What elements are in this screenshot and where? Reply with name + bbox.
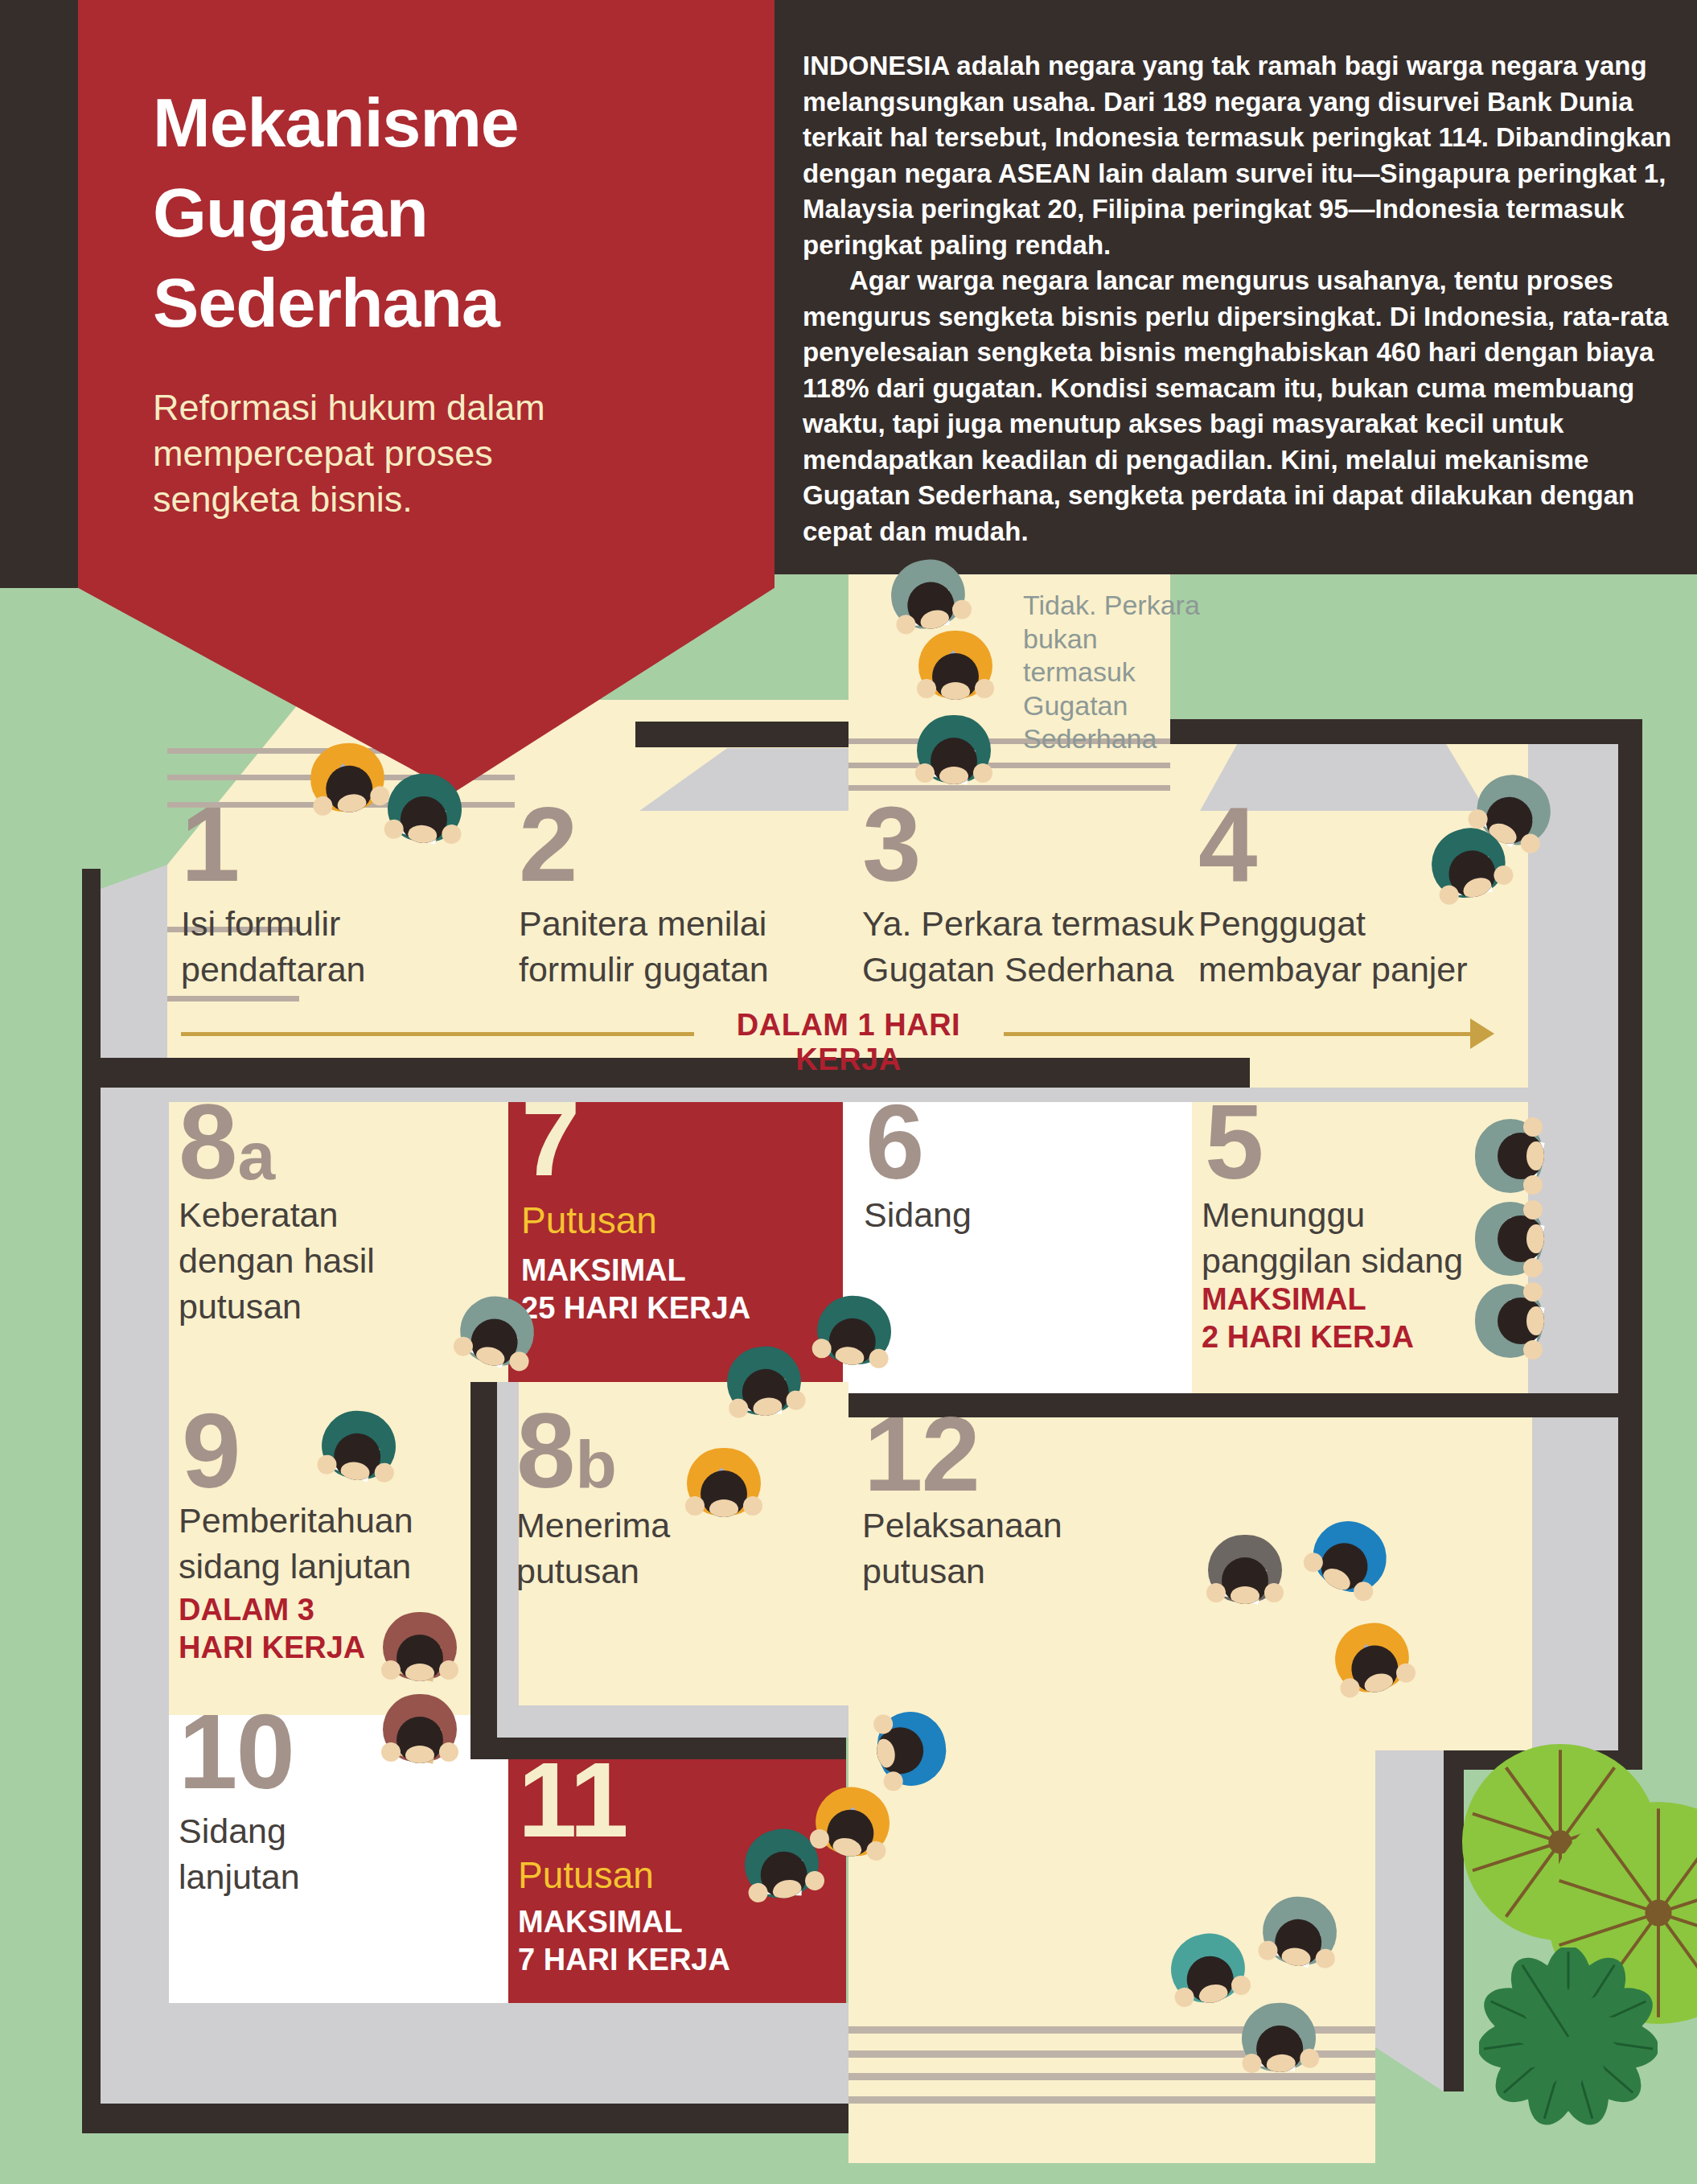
step-8a-number-main: 8 xyxy=(179,1104,236,1181)
step-8b-number: 8b xyxy=(516,1413,615,1490)
person-face-icon xyxy=(941,682,970,700)
person-head-icon xyxy=(931,738,977,784)
step-2-title-line: Panitera menilai xyxy=(519,901,769,947)
subtitle-line: sengketa bisnis. xyxy=(153,476,545,522)
step-9-note-line: DALAM 3 xyxy=(179,1591,365,1629)
sidewalk-top-band xyxy=(101,1088,1618,1102)
step-2-number: 2 xyxy=(519,806,576,883)
person-hand-icon xyxy=(973,763,992,783)
step-3-title: Ya. Perkara termasukGugatan Sederhana xyxy=(862,901,1194,993)
person-icon xyxy=(917,627,994,705)
person-icon xyxy=(865,1704,955,1793)
step-8a-title-line: dengan hasil xyxy=(179,1238,375,1284)
step-11-note-line: MAKSIMAL xyxy=(518,1903,730,1941)
sidewalk-left xyxy=(101,1088,169,2104)
step-9-title-line: Pemberitahuan xyxy=(179,1498,413,1544)
step-8a-number-sub: a xyxy=(237,1131,273,1181)
person-hand-icon xyxy=(685,1496,705,1516)
person-face-icon xyxy=(709,1499,738,1517)
step-6-title-line: Sidang xyxy=(864,1192,972,1238)
subtitle-line: mempercepat proses xyxy=(153,430,545,476)
person-hand-icon xyxy=(439,1660,458,1680)
person-hand-icon xyxy=(1523,1340,1543,1359)
step-7-label: Putusan xyxy=(521,1200,657,1240)
step-4-title-line: Penggugat xyxy=(1198,901,1468,947)
person-face-icon xyxy=(834,1345,866,1369)
step-7-note-line: MAKSIMAL xyxy=(521,1252,750,1289)
step-10-title-line: lanjutan xyxy=(179,1854,300,1900)
title-line: Sederhana xyxy=(153,257,519,348)
step-8b-number-sub: b xyxy=(575,1440,614,1490)
person-icon xyxy=(1206,1532,1284,1609)
person-head-icon xyxy=(701,1470,747,1517)
decision-note-line: Tidak. Perkara xyxy=(1023,589,1200,623)
step-6-number: 6 xyxy=(865,1104,922,1181)
tree-icon xyxy=(1479,1948,1658,2126)
sidewalk-bottom xyxy=(101,2003,848,2104)
person-hand-icon xyxy=(441,824,462,845)
step-1-title-line: Isi formulir xyxy=(181,901,366,947)
step-9-title: Pemberitahuansidang lanjutan xyxy=(179,1498,413,1590)
person-hand-icon xyxy=(1523,1258,1543,1277)
timeline-line-left xyxy=(181,1032,694,1036)
person-hand-icon xyxy=(1523,1117,1543,1137)
decision-note-line: termasuk xyxy=(1023,656,1200,689)
sidewalk-right-mid xyxy=(1532,1417,1618,1750)
person-face-icon xyxy=(1526,1224,1544,1253)
decision-note-line: Sederhana xyxy=(1023,722,1200,756)
person-face-icon xyxy=(752,1396,783,1418)
step-1-title-line: pendaftaran xyxy=(181,947,366,993)
step-7-number: 7 xyxy=(521,1100,578,1178)
step-5-title: Menunggupanggilan sidang xyxy=(1202,1192,1463,1284)
person-head-icon xyxy=(397,1635,443,1681)
intro-text: INDONESIA adalah negara yang tak ramah b… xyxy=(803,48,1678,549)
person-hand-icon xyxy=(1314,1948,1336,1969)
step-5-title-line: panggilan sidang xyxy=(1202,1238,1463,1284)
title-line: Mekanisme xyxy=(153,77,519,167)
timeline-label: DALAM 1 HARI KERJA xyxy=(708,1008,989,1077)
step-10-number: 10 xyxy=(179,1713,294,1791)
person-head-icon xyxy=(1498,1133,1544,1179)
step-9-title-line: sidang lanjutan xyxy=(179,1544,413,1590)
step-9-note: DALAM 3HARI KERJA xyxy=(179,1591,365,1667)
step-10-title-line: Sidang xyxy=(179,1808,300,1854)
person-face-icon xyxy=(1526,1306,1544,1335)
person-hand-icon xyxy=(743,1496,762,1516)
step-4-number: 4 xyxy=(1198,806,1255,883)
step-3-number: 3 xyxy=(862,806,919,883)
step-3-title-line: Ya. Perkara termasuk xyxy=(862,901,1194,947)
person-hand-icon xyxy=(785,1389,807,1411)
step-9-number: 9 xyxy=(182,1413,239,1490)
step-5-title-line: Menunggu xyxy=(1202,1192,1463,1238)
person-face-icon xyxy=(939,767,968,784)
person-hand-icon xyxy=(381,1660,401,1680)
step-8b-title: Menerimaputusan xyxy=(516,1503,670,1594)
wall-top-right xyxy=(1170,719,1642,744)
steps-exit xyxy=(848,2096,1375,2104)
page-subtitle: Reformasi hukum dalam mempercepat proses… xyxy=(153,385,545,522)
step-1-title: Isi formulirpendaftaran xyxy=(181,901,366,993)
step-2-title-line: formulir gugatan xyxy=(519,947,769,993)
person-face-icon xyxy=(1362,1671,1395,1697)
step-7-note: MAKSIMAL25 HARI KERJA xyxy=(521,1252,750,1327)
step-4-title: Penggugatmembayar panjer xyxy=(1198,901,1468,993)
person-hand-icon xyxy=(439,1742,458,1762)
person-head-icon xyxy=(1222,1557,1268,1604)
person-icon xyxy=(383,767,466,851)
step-12-number: 12 xyxy=(864,1416,979,1493)
step-1-number: 1 xyxy=(181,806,238,883)
wall-row1-bottom xyxy=(82,1058,1250,1088)
person-face-icon xyxy=(1526,1141,1544,1170)
person-icon xyxy=(381,1691,458,1768)
person-icon xyxy=(1472,1282,1549,1359)
steps-corridor xyxy=(848,763,1170,768)
person-hand-icon xyxy=(917,679,936,698)
person-icon xyxy=(721,1339,807,1425)
person-icon xyxy=(915,712,992,789)
wall-right-upper xyxy=(1618,719,1642,1750)
person-icon xyxy=(1472,1200,1549,1277)
person-face-icon xyxy=(336,792,368,816)
timeline-line-right xyxy=(1004,1032,1472,1036)
sidewalk-divider xyxy=(497,1382,519,1738)
wall-top-mid xyxy=(635,722,848,747)
wall-divider-9-8b xyxy=(470,1382,497,1759)
person-icon xyxy=(315,1403,402,1490)
step-5-note-line: 2 HARI KERJA xyxy=(1202,1318,1414,1356)
person-icon xyxy=(302,734,392,823)
sidewalk-8b-bottom xyxy=(497,1705,848,1738)
step-8a-title: Keberatandengan hasilputusan xyxy=(179,1192,375,1330)
person-face-icon xyxy=(771,1878,803,1902)
step-6-title: Sidang xyxy=(864,1192,972,1238)
person-hand-icon xyxy=(1523,1175,1543,1195)
step-5-number: 5 xyxy=(1205,1104,1262,1181)
person-face-icon xyxy=(405,1664,434,1681)
person-head-icon xyxy=(1498,1215,1544,1262)
decision-note-line: Gugatan xyxy=(1023,689,1200,723)
step-8b-number-main: 8 xyxy=(516,1413,573,1490)
person-face-icon xyxy=(1231,1586,1259,1604)
person-icon xyxy=(809,1286,898,1376)
step-5-note-line: MAKSIMAL xyxy=(1202,1281,1414,1318)
person-icon xyxy=(685,1445,762,1522)
person-icon xyxy=(381,1609,458,1686)
step-11-number: 11 xyxy=(518,1762,627,1839)
person-head-icon xyxy=(1498,1298,1544,1344)
sidewalk-exit-right xyxy=(1375,1750,1444,2091)
step-11-note-line: 7 HARI KERJA xyxy=(518,1941,730,1979)
intro-paragraph-2: Agar warga negara lancar mengurus usahan… xyxy=(803,263,1678,549)
step-12-title: Pelaksanaanputusan xyxy=(862,1503,1062,1594)
step-11-label: Putusan xyxy=(518,1855,654,1895)
step-11-note: MAKSIMAL7 HARI KERJA xyxy=(518,1903,730,1979)
person-hand-icon xyxy=(915,763,935,783)
step-12-title-line: Pelaksanaan xyxy=(862,1503,1062,1549)
step-10-title: Sidanglanjutan xyxy=(179,1808,300,1900)
person-hand-icon xyxy=(1264,1583,1284,1602)
person-hand-icon xyxy=(1523,1282,1543,1302)
intro-paragraph-1: INDONESIA adalah negara yang tak ramah b… xyxy=(803,48,1678,263)
step-8b-title-line: Menerima xyxy=(516,1503,670,1549)
person-face-icon xyxy=(1198,1982,1230,2007)
timeline-arrowhead-icon xyxy=(1470,1018,1494,1049)
title-line: Gugatan xyxy=(153,167,519,257)
person-icon xyxy=(1162,1923,1254,2015)
wall-bottom xyxy=(82,2104,848,2133)
person-icon xyxy=(1472,1117,1549,1195)
step-12-title-line: putusan xyxy=(862,1549,1062,1594)
header-left-panel xyxy=(0,0,78,588)
step-8a-number: 8a xyxy=(179,1104,273,1181)
step-4-title-line: membayar panjer xyxy=(1198,947,1468,993)
person-head-icon xyxy=(932,653,979,700)
page-title: Mekanisme Gugatan Sederhana xyxy=(153,77,519,348)
decision-note: Tidak. PerkarabukantermasukGugatanSederh… xyxy=(1023,589,1200,756)
person-head-icon xyxy=(397,1717,443,1763)
step-8a-title-line: putusan xyxy=(179,1284,375,1330)
person-face-icon xyxy=(831,1836,863,1861)
subtitle-line: Reformasi hukum dalam xyxy=(153,385,545,430)
person-face-icon xyxy=(405,1746,434,1763)
step-8b-title-line: putusan xyxy=(516,1549,670,1594)
steps-left-inner xyxy=(167,996,299,1002)
step-9-note-line: HARI KERJA xyxy=(179,1629,365,1667)
decision-note-line: bukan xyxy=(1023,623,1200,656)
person-hand-icon xyxy=(1299,2048,1320,2069)
step-2-title: Panitera menilaiformulir gugatan xyxy=(519,901,769,993)
ramp-left-entrance xyxy=(101,865,167,1058)
person-hand-icon xyxy=(381,1742,401,1762)
infographic-canvas: Tidak. PerkarabukantermasukGugatanSederh… xyxy=(0,0,1697,2184)
step-3-title-line: Gugatan Sederhana xyxy=(862,947,1194,993)
person-hand-icon xyxy=(373,1462,395,1483)
person-hand-icon xyxy=(1206,1583,1226,1602)
step-8a-title-line: Keberatan xyxy=(179,1192,375,1238)
step-7-note-line: 25 HARI KERJA xyxy=(521,1289,750,1327)
person-hand-icon xyxy=(1523,1200,1543,1220)
person-icon xyxy=(1237,1997,1321,2080)
person-hand-icon xyxy=(975,679,994,698)
person-icon xyxy=(1256,1889,1343,1976)
step-5-note: MAKSIMAL2 HARI KERJA xyxy=(1202,1281,1414,1356)
